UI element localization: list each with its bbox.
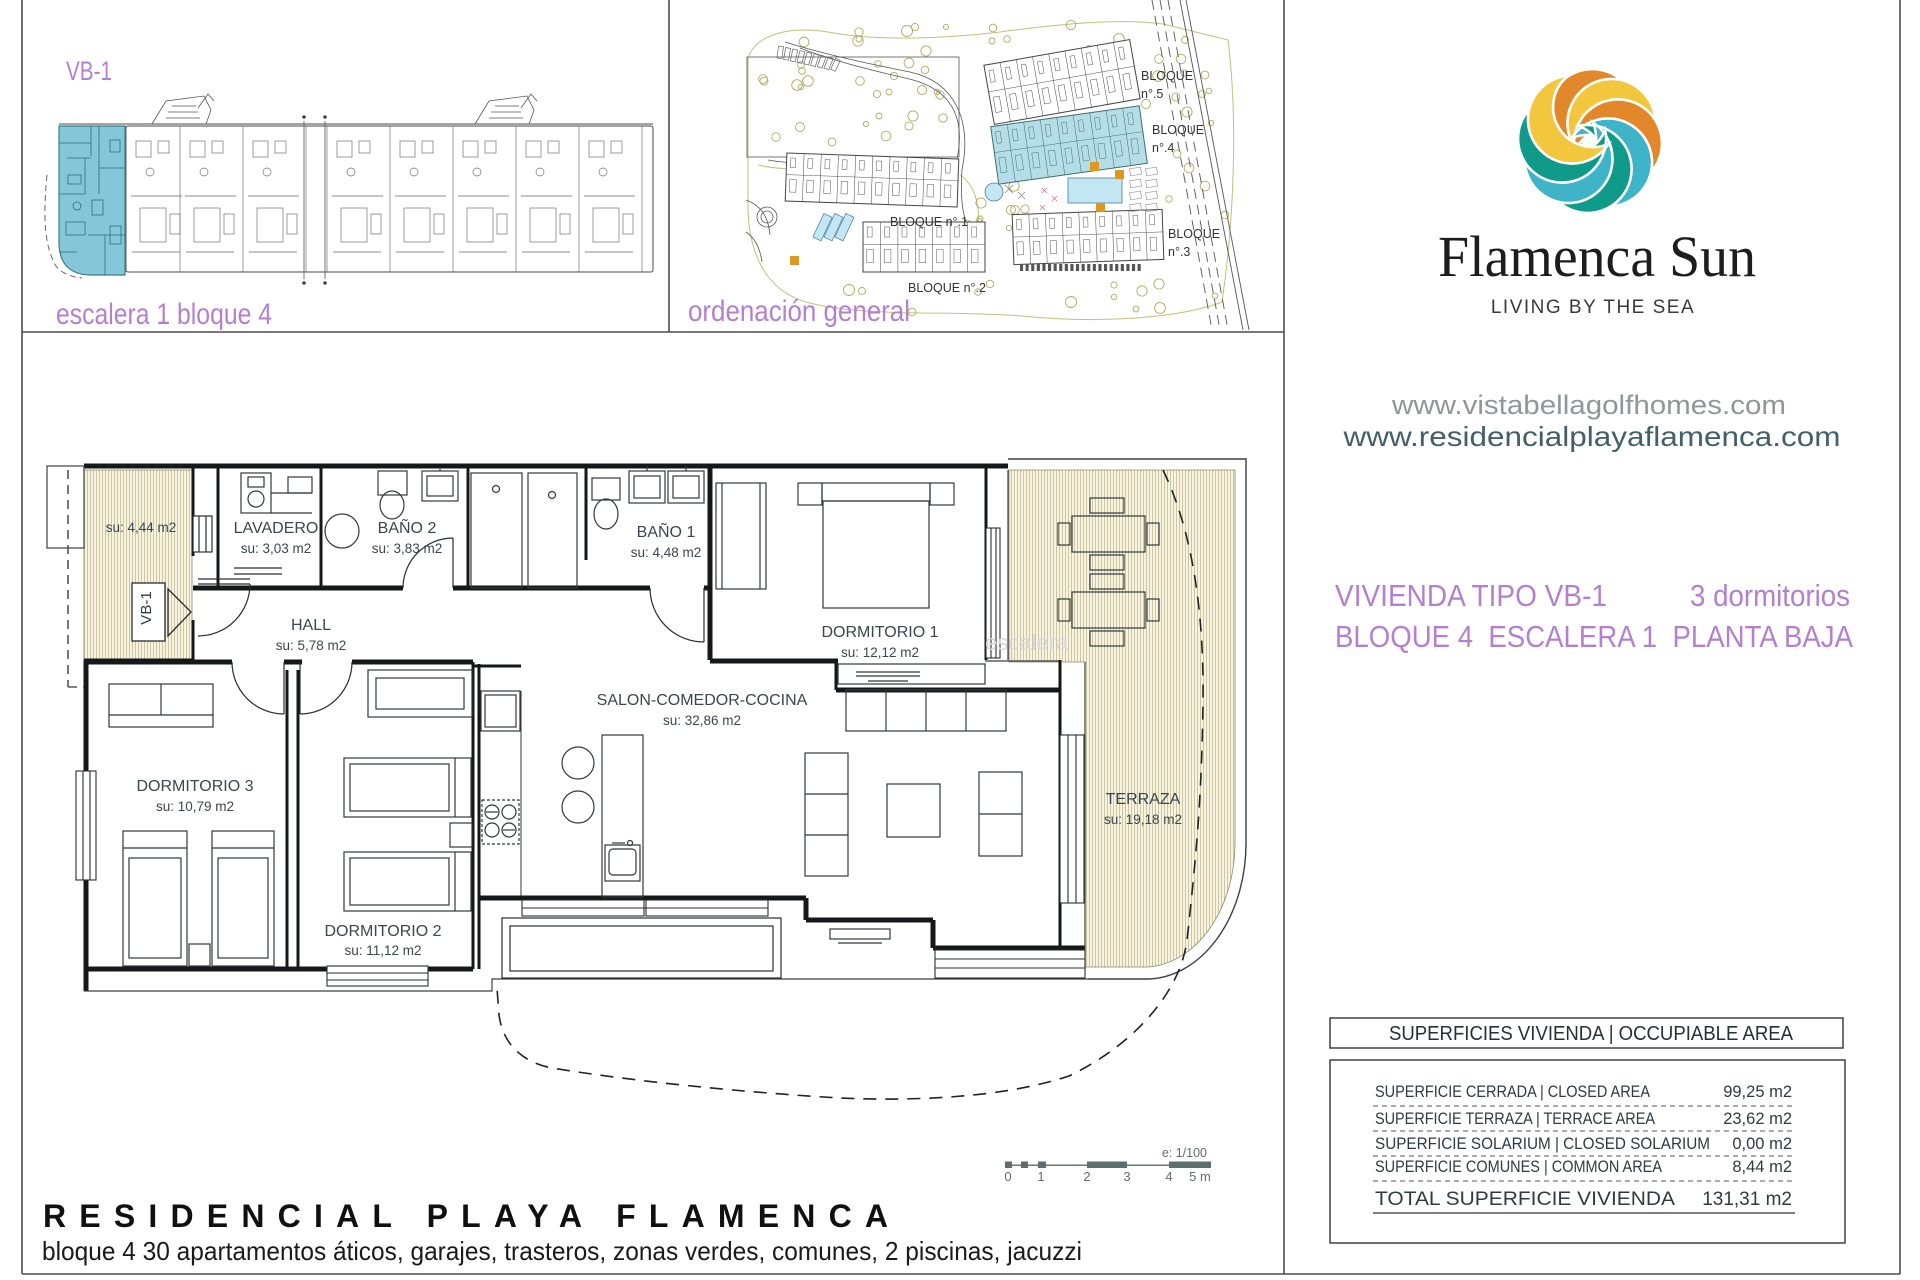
svg-text:su: 3,03 m2: su: 3,03 m2 [241, 541, 312, 556]
svg-text:su: 4,48 m2: su: 4,48 m2 [631, 545, 702, 560]
svg-text:VB-1: VB-1 [138, 591, 155, 624]
svg-text:escalera 1 bloque 4: escalera 1 bloque 4 [56, 298, 272, 331]
svg-text:8,44 m2: 8,44 m2 [1732, 1158, 1792, 1176]
svg-text:3: 3 [1123, 1169, 1130, 1184]
svg-text:SUPERFICIE CERRADA | CLOSED AR: SUPERFICIE CERRADA | CLOSED AREA [1375, 1083, 1650, 1101]
svg-text:SUPERFICIES VIVIENDA | OCCUPIA: SUPERFICIES VIVIENDA | OCCUPIABLE AREA [1389, 1023, 1794, 1045]
svg-text:4: 4 [1165, 1169, 1172, 1184]
svg-text:ordenación general: ordenación general [688, 295, 910, 328]
svg-text:BLOQUE: BLOQUE [1141, 69, 1193, 83]
svg-text:0,00 m2: 0,00 m2 [1732, 1135, 1792, 1153]
svg-text:www.vistabellagolfhomes.com: www.vistabellagolfhomes.com [1391, 390, 1786, 420]
svg-text:Flamenca Sun: Flamenca Sun [1438, 224, 1756, 289]
svg-text:escalera: escalera [985, 630, 1069, 655]
svg-text:su: 10,79 m2: su: 10,79 m2 [156, 799, 234, 814]
svg-text:n°.3: n°.3 [1168, 245, 1190, 259]
svg-text:BLOQUE: BLOQUE [1152, 123, 1204, 137]
svg-text:99,25 m2: 99,25 m2 [1723, 1083, 1792, 1101]
svg-text:su: 19,18 m2: su: 19,18 m2 [1104, 812, 1182, 827]
svg-text:LAVADERO: LAVADERO [234, 520, 319, 537]
svg-text:RESIDENCIAL PLAYA FLAMENCA: RESIDENCIAL PLAYA FLAMENCA [43, 1198, 888, 1234]
svg-text:e: 1/100: e: 1/100 [1162, 1146, 1207, 1160]
svg-text:HALL: HALL [291, 617, 331, 634]
svg-text:5 m: 5 m [1189, 1169, 1211, 1184]
svg-text:2: 2 [1083, 1169, 1090, 1184]
svg-text:n°.4: n°.4 [1152, 141, 1174, 155]
svg-text:BLOQUE: BLOQUE [1168, 227, 1220, 241]
svg-text:SUPERFICIE SOLARIUM | CLOSED S: SUPERFICIE SOLARIUM | CLOSED SOLARIUM [1375, 1135, 1710, 1153]
svg-text:LIVING BY THE SEA: LIVING BY THE SEA [1491, 297, 1695, 318]
svg-text:0: 0 [1004, 1169, 1011, 1184]
svg-text:VIVIENDA TIPO VB-1: VIVIENDA TIPO VB-1 [1335, 578, 1607, 613]
svg-text:BLOQUE n°.2: BLOQUE n°.2 [908, 281, 986, 295]
svg-text:su: 5,78 m2: su: 5,78 m2 [276, 638, 347, 653]
svg-text:3 dormitorios: 3 dormitorios [1690, 578, 1850, 613]
svg-text:bloque 4 30 apartamentos ático: bloque 4 30 apartamentos áticos, garajes… [42, 1236, 1082, 1266]
svg-text:SALON-COMEDOR-COCINA: SALON-COMEDOR-COCINA [597, 692, 808, 709]
svg-text:BAÑO 1: BAÑO 1 [637, 521, 696, 541]
svg-text:BLOQUE n°.1: BLOQUE n°.1 [890, 215, 968, 229]
svg-text:SUPERFICIE COMUNES | COMMON AR: SUPERFICIE COMUNES | COMMON AREA [1375, 1158, 1662, 1176]
svg-text:TOTAL SUPERFICIE VIVIENDA: TOTAL SUPERFICIE VIVIENDA [1375, 1189, 1675, 1210]
svg-text:131,31 m2: 131,31 m2 [1702, 1189, 1792, 1210]
svg-text:su: 12,12 m2: su: 12,12 m2 [841, 645, 919, 660]
svg-text:SUPERFICIE TERRAZA | TERRACE: SUPERFICIE TERRAZA | TERRACE AREA [1375, 1110, 1655, 1128]
svg-text:su: 4,44 m2: su: 4,44 m2 [106, 520, 177, 535]
svg-text:BAÑO 2: BAÑO 2 [378, 517, 437, 537]
svg-text:su: 32,86 m2: su: 32,86 m2 [663, 713, 741, 728]
svg-text:su: 11,12 m2: su: 11,12 m2 [344, 943, 421, 958]
svg-text:BLOQUE 4 ESCALERA 1 PLANTA B: BLOQUE 4 ESCALERA 1 PLANTA BAJA [1335, 619, 1853, 654]
svg-text:TERRAZA: TERRAZA [1106, 791, 1181, 808]
svg-text:n°.5: n°.5 [1141, 87, 1163, 101]
svg-text:DORMITORIO 1: DORMITORIO 1 [821, 624, 938, 641]
svg-text:23,62 m2: 23,62 m2 [1723, 1110, 1792, 1128]
svg-text:1: 1 [1037, 1169, 1044, 1184]
svg-text:VB-1: VB-1 [66, 56, 112, 86]
svg-text:DORMITORIO 3: DORMITORIO 3 [136, 778, 253, 795]
svg-text:www.residencialplayaflamenca.c: www.residencialplayaflamenca.com [1342, 421, 1840, 452]
svg-text:su: 3,83 m2: su: 3,83 m2 [372, 541, 443, 556]
svg-text:DORMITORIO 2: DORMITORIO 2 [324, 923, 441, 940]
